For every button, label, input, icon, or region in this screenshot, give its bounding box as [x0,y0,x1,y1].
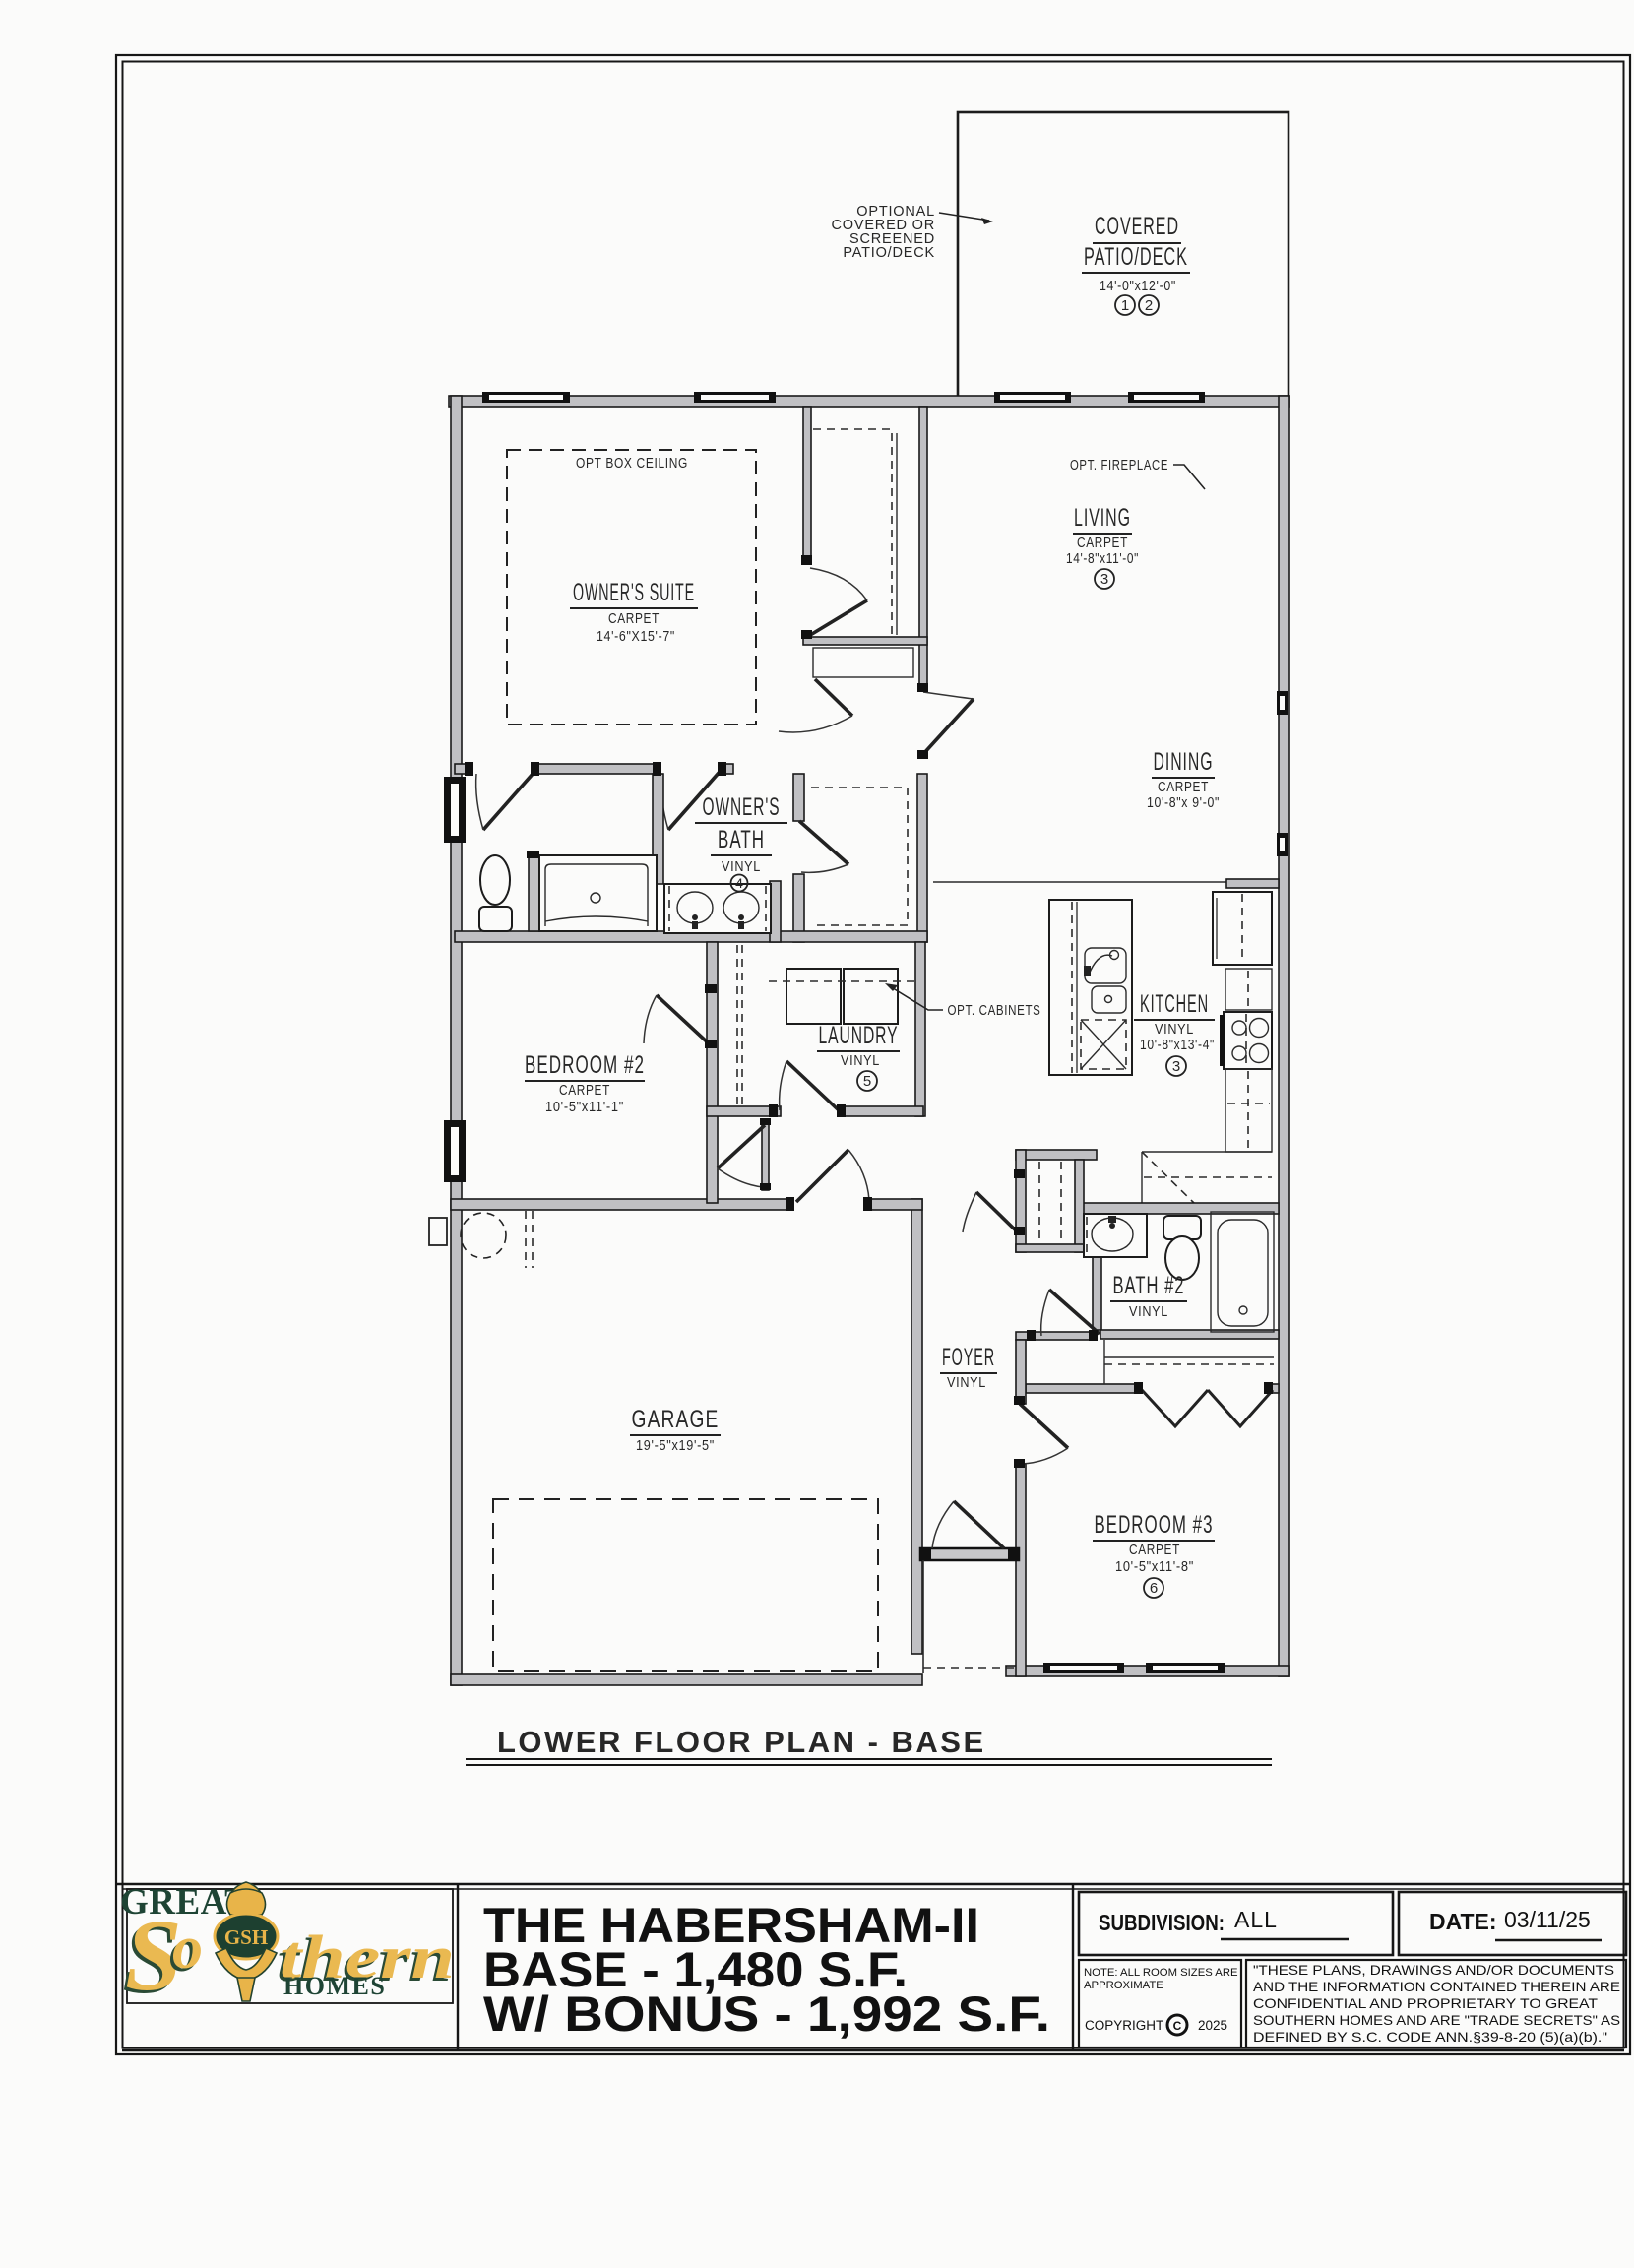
svg-text:W/ BONUS - 1,992 S.F.: W/ BONUS - 1,992 S.F. [483,1986,1050,2042]
svg-text:DINING: DINING [1154,748,1214,776]
svg-text:4: 4 [735,875,743,891]
svg-text:OPT. CABINETS: OPT. CABINETS [948,1003,1041,1019]
svg-text:PATIO/DECK: PATIO/DECK [1084,243,1188,271]
svg-text:14'-8"x11'-0": 14'-8"x11'-0" [1066,551,1139,567]
svg-text:3: 3 [1172,1058,1180,1075]
svg-text:14'-6"X15'-7": 14'-6"X15'-7" [597,629,675,645]
svg-text:03/11/25: 03/11/25 [1504,1907,1591,1932]
svg-text:1: 1 [1121,297,1129,314]
svg-text:APPROXIMATE: APPROXIMATE [1084,1980,1163,1991]
svg-text:CARPET: CARPET [1129,1543,1180,1558]
svg-text:VINYL: VINYL [1129,1304,1168,1320]
svg-text:"THESE PLANS, DRAWINGS AND/OR: "THESE PLANS, DRAWINGS AND/OR DOCUMENTS [1253,1962,1614,1978]
svg-text:VINYL: VINYL [841,1053,880,1069]
svg-text:ALL: ALL [1234,1907,1278,1932]
svg-text:10'-5"x11'-8": 10'-5"x11'-8" [1115,1559,1194,1575]
svg-text:SOUTHERN HOMES AND ARE "TRADE: SOUTHERN HOMES AND ARE "TRADE SECRETS" A… [1253,2012,1620,2028]
svg-text:LIVING: LIVING [1074,504,1131,532]
svg-text:HOMES: HOMES [283,1972,386,2000]
svg-text:NOTE: ALL ROOM SIZES ARE: NOTE: ALL ROOM SIZES ARE [1084,1967,1238,1979]
svg-text:KITCHEN: KITCHEN [1140,990,1209,1018]
svg-text:o: o [172,1915,203,1982]
svg-text:FOYER: FOYER [942,1344,995,1371]
svg-text:DEFINED BY S.C. CODE ANN.§39-8: DEFINED BY S.C. CODE ANN.§39-8-20 (5)(a)… [1253,2029,1607,2045]
svg-text:C: C [1173,2019,1182,2033]
svg-text:BEDROOM #2: BEDROOM #2 [525,1051,645,1079]
svg-text:DATE:: DATE: [1429,1909,1497,1934]
svg-text:6: 6 [1150,1580,1158,1597]
svg-text:COPYRIGHT: COPYRIGHT [1085,2018,1163,2033]
svg-text:CARPET: CARPET [1077,535,1128,551]
svg-text:SUBDIVISION:: SUBDIVISION: [1099,1910,1225,1935]
svg-text:OWNER'S: OWNER'S [703,793,781,821]
svg-text:OPT. FIREPLACE: OPT. FIREPLACE [1070,458,1168,473]
svg-text:CARPET: CARPET [1158,780,1209,795]
svg-text:CONFIDENTIAL AND PROPRIETARY T: CONFIDENTIAL AND PROPRIETARY TO GREAT [1253,1995,1598,2011]
svg-text:GSH: GSH [224,1925,268,1949]
svg-text:10'-8"x 9'-0": 10'-8"x 9'-0" [1147,795,1220,811]
svg-text:19'-5"x19'-5": 19'-5"x19'-5" [636,1438,715,1454]
svg-text:2: 2 [1145,297,1153,314]
svg-text:2025: 2025 [1198,2018,1227,2033]
svg-text:3: 3 [1100,571,1108,588]
svg-text:AND THE INFORMATION CONTAINED: AND THE INFORMATION CONTAINED THEREIN AR… [1253,1979,1620,1994]
svg-text:VINYL: VINYL [947,1375,986,1391]
svg-text:COVERED: COVERED [1095,213,1179,240]
svg-text:OWNER'S SUITE: OWNER'S SUITE [573,579,695,606]
svg-text:VINYL: VINYL [722,859,761,875]
svg-text:OPT BOX CEILING: OPT BOX CEILING [576,456,688,472]
svg-text:PATIO/DECK: PATIO/DECK [843,245,935,261]
svg-text:14'-0"x12'-0": 14'-0"x12'-0" [1100,279,1176,294]
svg-text:CARPET: CARPET [608,611,660,627]
svg-text:LAUNDRY: LAUNDRY [819,1022,899,1049]
svg-text:10'-8"x13'-4": 10'-8"x13'-4" [1140,1038,1215,1053]
svg-text:5: 5 [863,1073,871,1090]
svg-text:10'-5"x11'-1": 10'-5"x11'-1" [545,1100,624,1115]
svg-text:CARPET: CARPET [559,1083,610,1099]
svg-text:BATH #2: BATH #2 [1113,1272,1185,1299]
svg-text:GARAGE: GARAGE [632,1406,720,1433]
svg-text:LOWER FLOOR PLAN - BASE: LOWER FLOOR PLAN - BASE [497,1725,986,1759]
svg-text:BATH: BATH [718,826,765,853]
svg-text:BEDROOM #3: BEDROOM #3 [1095,1511,1214,1539]
svg-text:VINYL: VINYL [1155,1022,1194,1038]
